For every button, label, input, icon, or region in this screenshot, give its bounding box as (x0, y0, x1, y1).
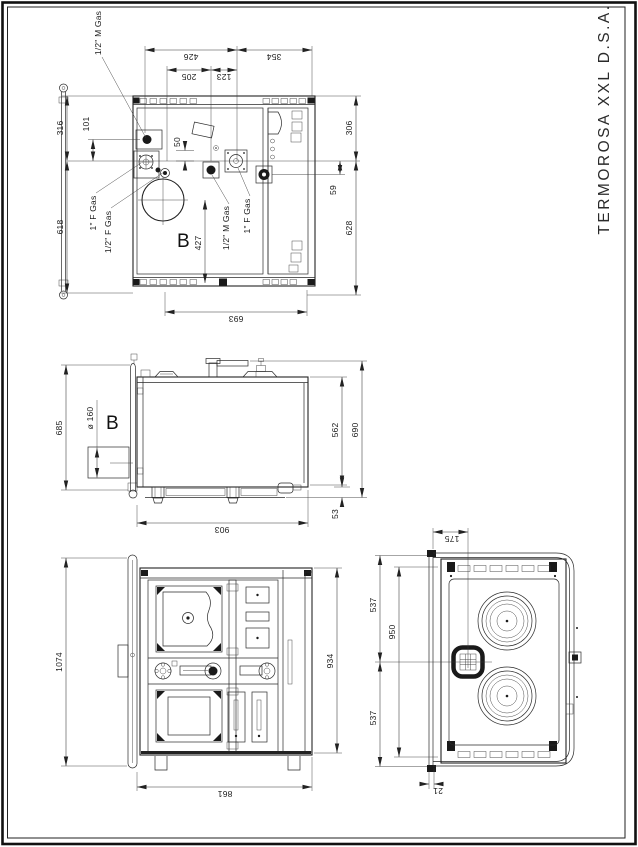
view-cooktop: 175 537 537 950 21 (368, 528, 581, 796)
dim-690: 690 (350, 423, 360, 438)
burner-rings-lower (478, 667, 536, 725)
view-front: 1074 934 861 (54, 555, 342, 799)
dim-59: 59 (328, 185, 338, 195)
dim-934: 934 (325, 654, 335, 669)
rear-gas-labels: 1/2" M Gas 1" F Gas 1/2" F Gas 1/2" M Ga… (88, 11, 252, 253)
dim-427: 427 (193, 236, 203, 251)
dim-354: 354 (267, 52, 282, 62)
dim-21: 21 (433, 786, 443, 796)
front-dimensions: 1074 934 861 (54, 558, 342, 799)
burner-rings-upper (478, 592, 536, 650)
front-body (118, 555, 312, 770)
dim-537-lower: 537 (368, 711, 378, 726)
dim-1074: 1074 (54, 652, 64, 672)
rear-body (133, 96, 315, 286)
dim-628: 628 (344, 221, 354, 236)
dim-903: 903 (215, 525, 230, 535)
dim-861: 861 (218, 789, 233, 799)
dim-flue-160: ø 160 (85, 407, 95, 430)
dim-205: 205 (182, 72, 197, 82)
dim-426: 426 (184, 52, 199, 62)
rear-section-label-B: B (177, 231, 190, 252)
dim-537-upper: 537 (368, 598, 378, 613)
technical-drawing: 426 354 205 123 316 618 101 306 628 59 6… (0, 0, 638, 847)
label-left-gas-1: 1" F Gas (88, 196, 98, 231)
dim-618: 618 (55, 220, 65, 235)
side-dimensions: 685 ø 160 B 562 690 53 903 (54, 361, 367, 535)
side-section-label-B: B (106, 413, 119, 434)
side-body (88, 354, 308, 503)
dim-950: 950 (387, 625, 397, 640)
dim-562: 562 (330, 423, 340, 438)
drawing-sheet: 426 354 205 123 316 618 101 306 628 59 6… (0, 0, 638, 847)
view-side: 685 ø 160 B 562 690 53 903 (54, 354, 367, 535)
model-title: TERMOROSA XXL D.S.A. (596, 3, 613, 234)
view-rear-connections: 426 354 205 123 316 618 101 306 628 59 6… (55, 11, 361, 324)
dim-306: 306 (344, 121, 354, 136)
dim-175: 175 (445, 534, 460, 544)
dim-693: 693 (229, 314, 244, 324)
label-left-gas-2: 1/2" F Gas (103, 211, 113, 253)
handrail (59, 84, 68, 299)
cooktop-dimensions: 175 537 537 950 21 (368, 528, 492, 796)
label-right-gas: 1" F Gas (242, 199, 252, 234)
sheet-border (3, 3, 636, 845)
cooktop-body (427, 550, 581, 772)
dim-685: 685 (54, 421, 64, 436)
dim-50: 50 (172, 137, 182, 147)
dim-101: 101 (81, 117, 91, 132)
label-mid-gas: 1/2" M Gas (221, 206, 231, 250)
dim-316: 316 (55, 121, 65, 136)
dim-53: 53 (330, 509, 340, 519)
rear-extension-lines (60, 46, 361, 316)
dim-123: 123 (217, 72, 232, 82)
label-top-gas: 1/2" M Gas (93, 11, 103, 55)
